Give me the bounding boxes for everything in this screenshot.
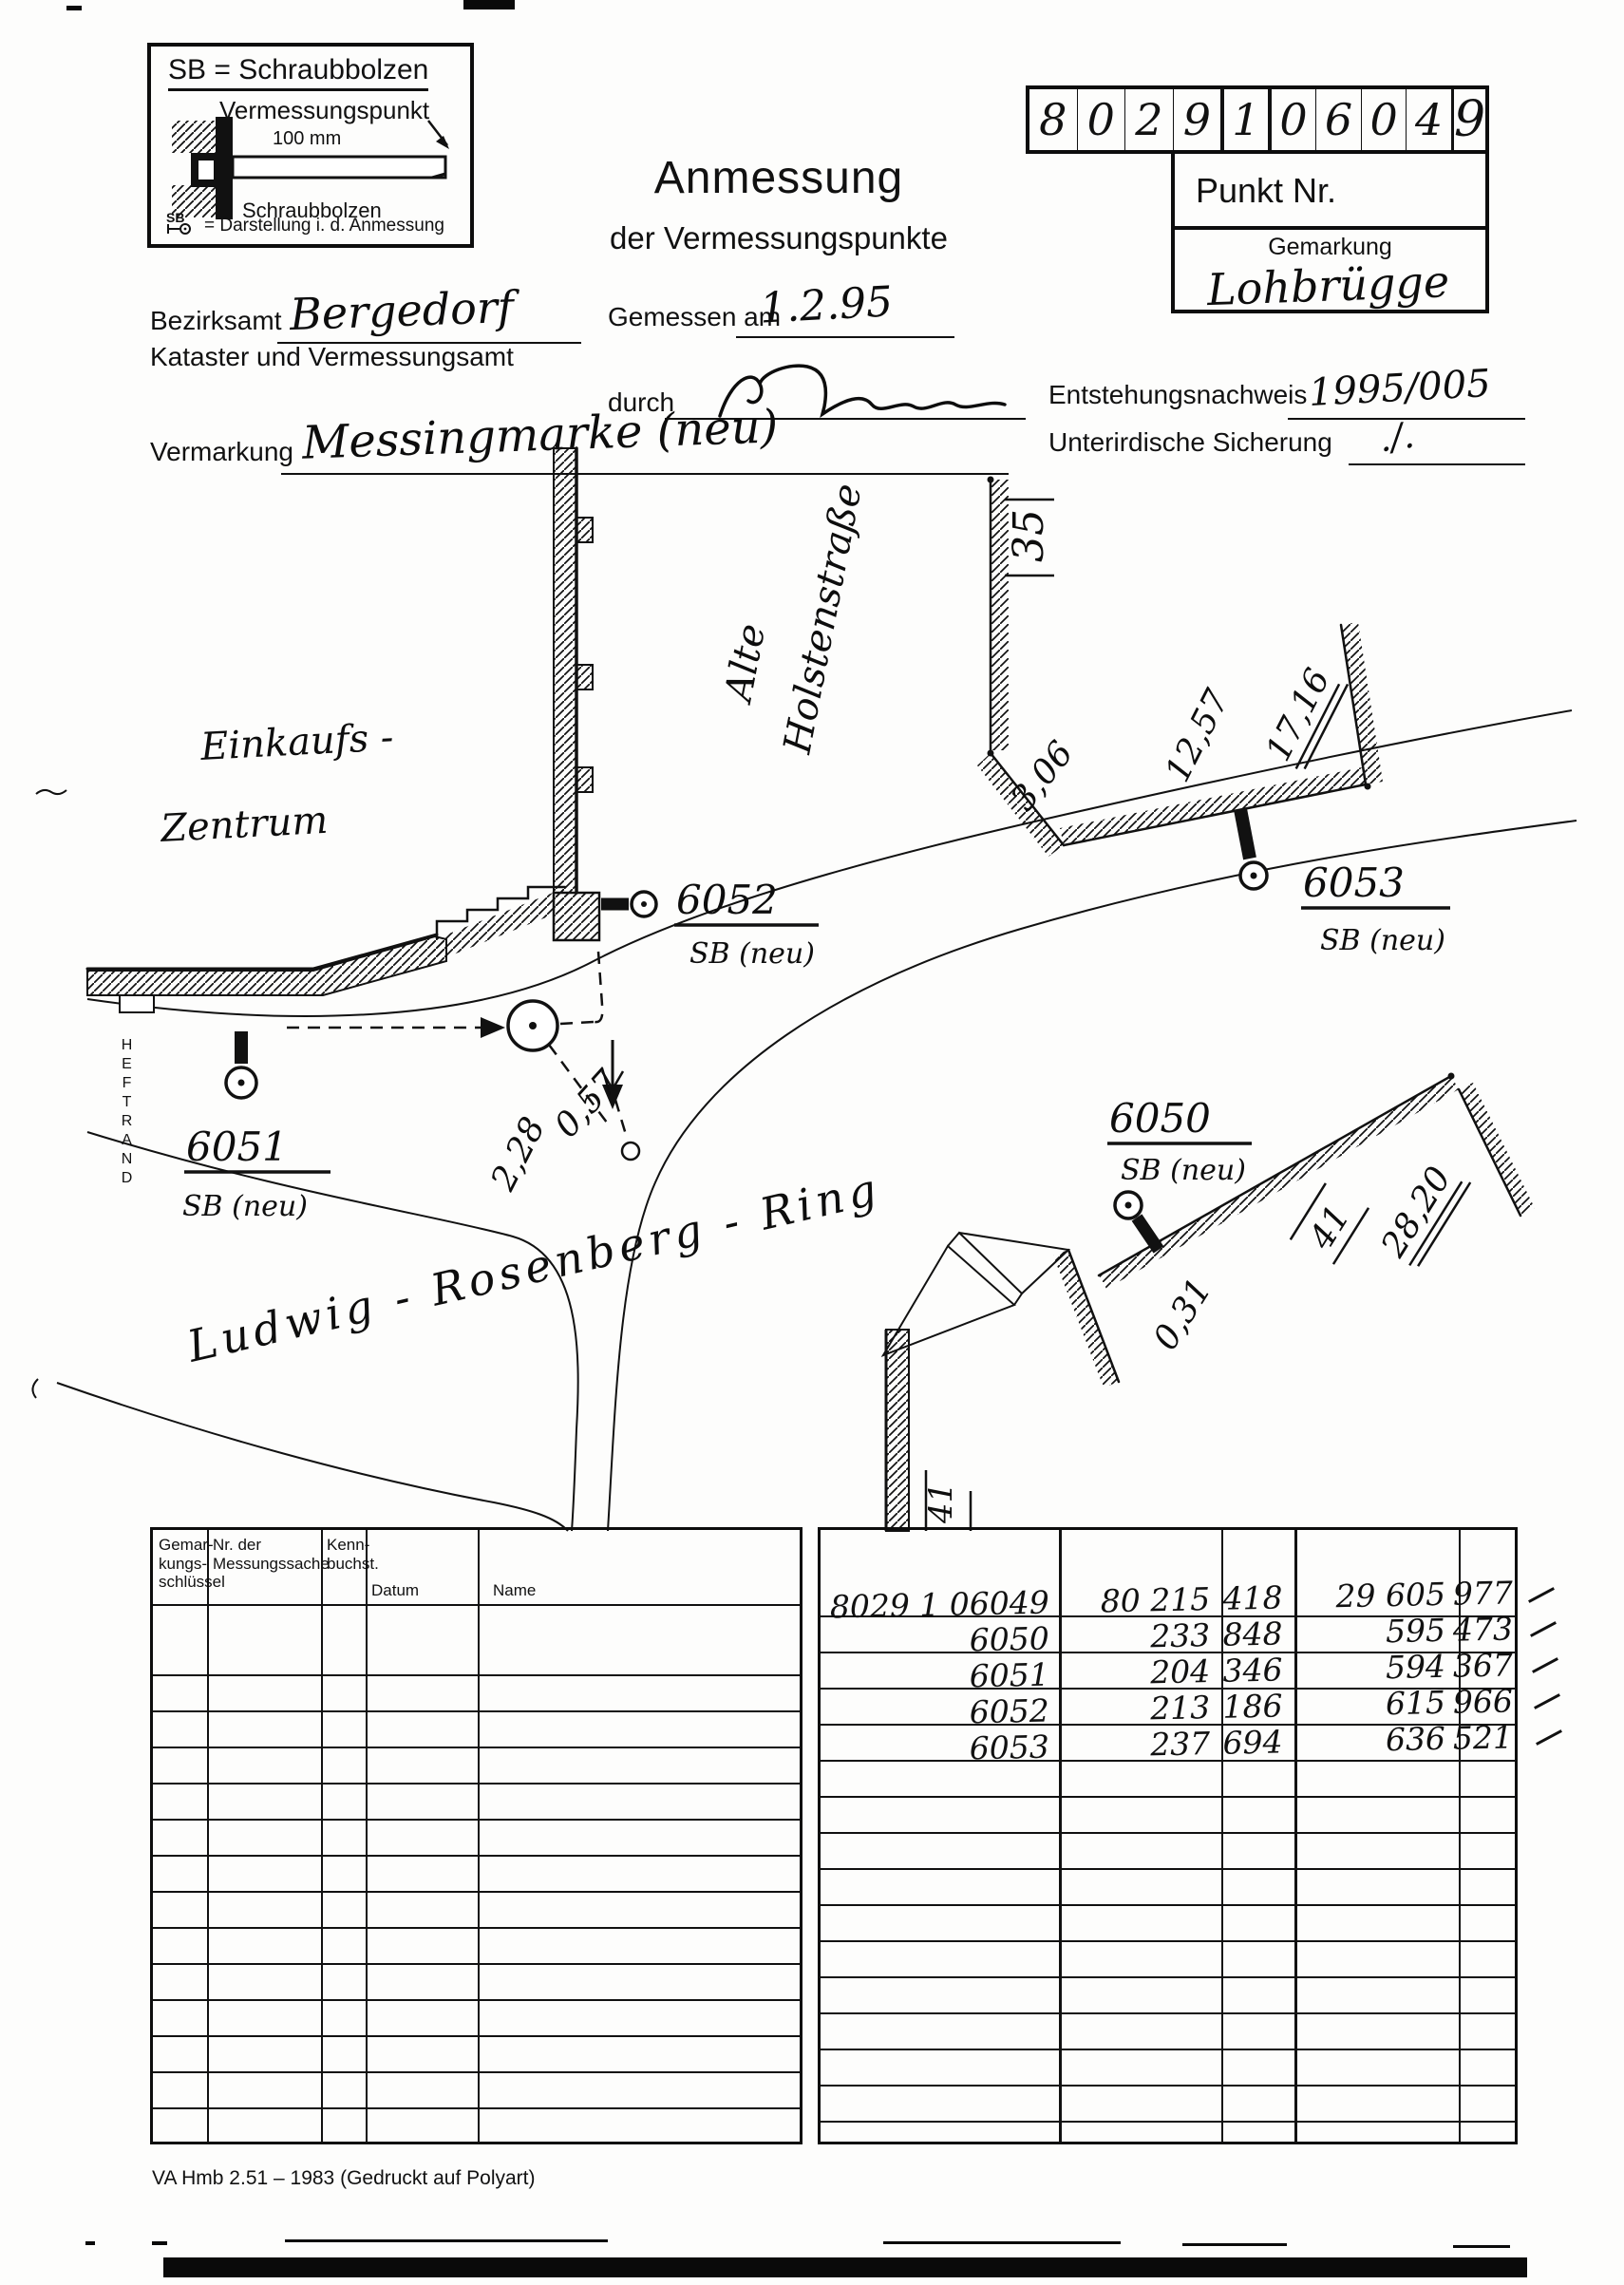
measure-35: 35 <box>1005 500 1054 576</box>
x-coordinate-cell: 346 <box>1218 1651 1291 1690</box>
punkt-digit: 4 <box>1407 89 1454 150</box>
scanned-survey-form: SB = Schraubbolzen Vermessungspunkt 100 … <box>0 0 1624 2285</box>
bezirksamt-line <box>277 315 581 344</box>
column-header: Gemar- kungs- schlüssel <box>153 1530 207 1604</box>
x-coordinate-cell: 694 <box>1218 1723 1291 1762</box>
check-tick <box>1532 1657 1558 1673</box>
x-coordinate-cell: 233 <box>1056 1615 1218 1656</box>
scan-artifact <box>883 2241 1121 2244</box>
scan-artifact <box>1453 2245 1510 2248</box>
column-header: Kenn- buchst. <box>321 1530 366 1604</box>
punkt-digit: 9 <box>1454 89 1485 150</box>
point-number-cell: 6053 <box>821 1728 1057 1769</box>
svg-text:6052: 6052 <box>676 877 778 923</box>
coordinate-table: 8029 1 06049 80 215 418 29 605 977 6050 … <box>818 1527 1518 2144</box>
svg-text:28,20: 28,20 <box>1373 1161 1459 1265</box>
bolt-6052-icon <box>601 892 656 916</box>
page-subtitle: der Vermessungspunkte <box>513 220 1045 256</box>
punkt-digit: 0 <box>1362 89 1407 150</box>
check-tick <box>1528 1587 1555 1603</box>
column-header: Datum <box>366 1530 478 1604</box>
y-coordinate-cell: 367 <box>1453 1646 1516 1684</box>
point-label-6053: 6053 SB (neu) <box>1301 859 1450 957</box>
y-coordinate-cell: 594 <box>1290 1647 1453 1688</box>
column-header: Name <box>478 1530 800 1604</box>
punkt-number-grid: 8 0 2 9 1 0 6 0 4 9 <box>1026 85 1489 154</box>
svg-text:6053: 6053 <box>1303 859 1405 906</box>
scan-artifact <box>66 6 82 10</box>
svg-text:17,16: 17,16 <box>1258 663 1337 767</box>
street-holstenstrasse: Holstenstraße <box>775 481 870 758</box>
form-id-footer: VA Hmb 2.51 – 1983 (Gedruckt auf Polyart… <box>152 2167 535 2190</box>
point-number-cell: 6052 <box>821 1691 1057 1733</box>
y-coordinate-cell: 977 <box>1453 1574 1516 1612</box>
y-coordinate-cell: 615 <box>1290 1683 1453 1724</box>
check-tick <box>1536 1729 1562 1746</box>
gemessen-line <box>736 310 954 338</box>
house-number-41: 41 <box>1291 1181 1369 1266</box>
survey-sketch: Alte Holstenstraße Einkaufs - Zentrum Lu… <box>0 437 1624 1534</box>
y-coordinate-cell: 29 605 <box>1290 1575 1453 1615</box>
measure-2-28: 2,28 <box>483 1111 553 1198</box>
gemarkung-value: Lohbrügge <box>1206 255 1486 315</box>
point-label-6050: 6050 SB (neu) <box>1107 1095 1252 1187</box>
svg-text:SB (neu): SB (neu) <box>689 937 815 971</box>
svg-text:6051: 6051 <box>186 1124 288 1170</box>
amt-line: Kataster und Vermessungsamt <box>150 342 514 372</box>
svg-text:SB (neu): SB (neu) <box>1121 1154 1246 1187</box>
street-alte: Alte <box>716 620 774 708</box>
x-coordinate-cell: 237 <box>1056 1724 1218 1765</box>
bolt-6053-icon <box>1240 809 1267 889</box>
y-coordinate-cell: 473 <box>1453 1610 1516 1648</box>
scan-artifact <box>1182 2243 1287 2246</box>
x-coordinate-cell: 213 <box>1056 1688 1218 1728</box>
point-label-6052: 6052 SB (neu) <box>674 877 819 971</box>
scan-artifact <box>85 2241 95 2245</box>
punkt-nr-box: Punkt Nr. <box>1171 150 1489 230</box>
entstehung-label: Entstehungsnachweis <box>1048 380 1307 410</box>
bezirksamt-label: Bezirksamt <box>150 306 281 336</box>
point-number-cell: 8029 1 06049 <box>821 1583 1057 1625</box>
measure-0-31: 0,31 <box>1146 1272 1219 1357</box>
stray-mark <box>36 790 66 794</box>
svg-text:SB (neu): SB (neu) <box>1320 924 1445 957</box>
svg-text:35: 35 <box>1005 509 1053 562</box>
legend-symbol-sb: SB <box>166 213 195 222</box>
y-coordinate-cell: 966 <box>1453 1682 1516 1720</box>
point-label-6051: 6051 SB (neu) <box>182 1124 330 1223</box>
x-coordinate-cell: 204 <box>1056 1652 1218 1692</box>
sb-symbol-icon <box>166 222 195 236</box>
area-zentrum: Zentrum <box>158 799 329 851</box>
punkt-digit: 0 <box>1078 89 1126 150</box>
column-header: Nr. der Messungssache <box>207 1530 321 1604</box>
stray-mark <box>32 1379 38 1398</box>
punkt-digit: 8 <box>1029 89 1078 150</box>
left-table: Gemar- kungs- schlüssel Nr. der Messungs… <box>150 1527 803 2144</box>
scan-artifact <box>285 2239 608 2242</box>
y-coordinate-cell: 521 <box>1453 1718 1516 1756</box>
measure-28-20: 28,20 <box>1373 1156 1470 1270</box>
legend-symbol-note: = Darstellung i. d. Anmessung <box>204 216 444 236</box>
scan-artifact <box>152 2241 167 2245</box>
punkt-digit: 9 <box>1174 89 1225 150</box>
bolt-6051-icon <box>226 1031 256 1098</box>
legend-box: SB = Schraubbolzen Vermessungspunkt 100 … <box>147 43 474 248</box>
table-grid <box>153 1640 800 2143</box>
x-coordinate-cell: 848 <box>1218 1615 1291 1653</box>
house-number-41-bottom: 41 <box>922 1482 960 1524</box>
x-coordinate-cell: 418 <box>1218 1578 1291 1617</box>
scan-artifact <box>463 0 515 9</box>
x-coordinate-cell: 80 215 <box>1056 1579 1218 1620</box>
point-number-cell: 6050 <box>821 1619 1057 1661</box>
measure-0-57: 0,57 <box>547 1063 627 1145</box>
svg-text:SB (neu): SB (neu) <box>182 1190 308 1223</box>
punkt-digit: 1 <box>1224 89 1272 150</box>
check-tick <box>1534 1693 1560 1709</box>
punkt-nr-label: Punkt Nr. <box>1196 171 1485 211</box>
x-coordinate-cell: 186 <box>1218 1687 1291 1726</box>
punkt-digit: 6 <box>1316 89 1362 150</box>
scan-artifact <box>163 2257 1527 2277</box>
gable-structures <box>883 1233 1068 1531</box>
bolt-6050-icon <box>1115 1192 1159 1250</box>
check-tick <box>1530 1621 1557 1637</box>
page-title: Anmessung <box>513 152 1045 204</box>
measure-12-57: 12,57 <box>1158 684 1237 789</box>
svg-text:6050: 6050 <box>1109 1095 1211 1142</box>
point-number-cell: 6051 <box>821 1655 1057 1697</box>
punkt-digit: 0 <box>1272 89 1317 150</box>
y-coordinate-cell: 595 <box>1290 1611 1453 1652</box>
area-einkaufs: Einkaufs - <box>198 715 394 769</box>
aux-point-icon <box>622 1142 639 1160</box>
gemarkung-box: Gemarkung Lohbrügge <box>1171 226 1489 313</box>
y-coordinate-cell: 636 <box>1290 1719 1453 1760</box>
punkt-digit: 2 <box>1125 89 1174 150</box>
